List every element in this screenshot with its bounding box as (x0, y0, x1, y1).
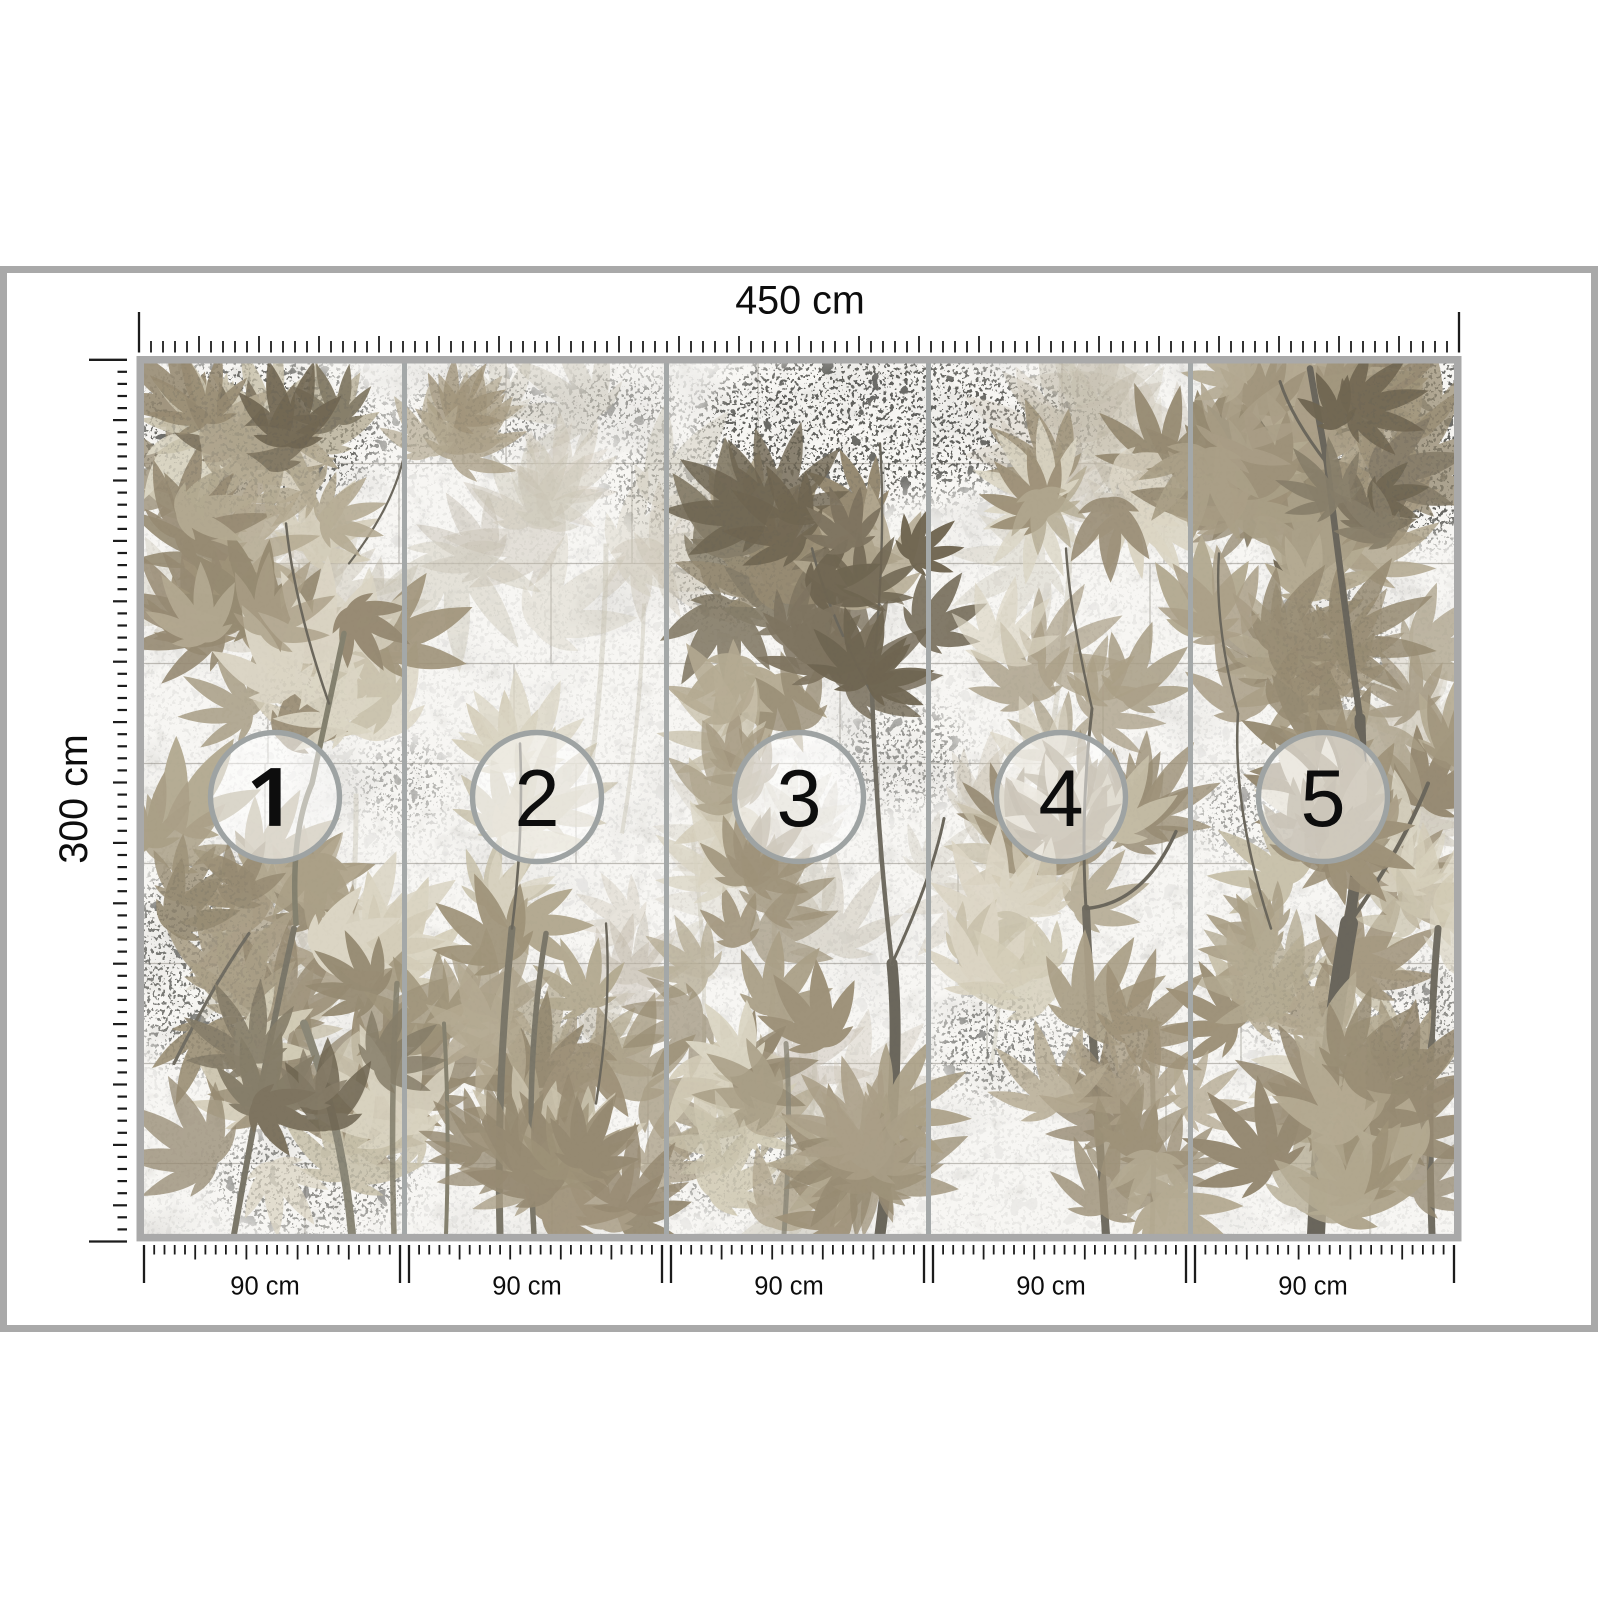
svg-text:90 cm: 90 cm (230, 1273, 299, 1301)
svg-text:90 cm: 90 cm (492, 1273, 561, 1301)
svg-text:300 cm: 300 cm (52, 734, 96, 864)
svg-text:90 cm: 90 cm (1016, 1273, 1085, 1301)
svg-text:90 cm: 90 cm (754, 1273, 823, 1301)
svg-text:450 cm: 450 cm (735, 279, 865, 323)
svg-text:4: 4 (1038, 754, 1083, 844)
svg-text:2: 2 (514, 754, 559, 844)
svg-text:3: 3 (776, 754, 821, 844)
svg-text:90 cm: 90 cm (1278, 1273, 1347, 1301)
svg-text:5: 5 (1300, 754, 1345, 844)
